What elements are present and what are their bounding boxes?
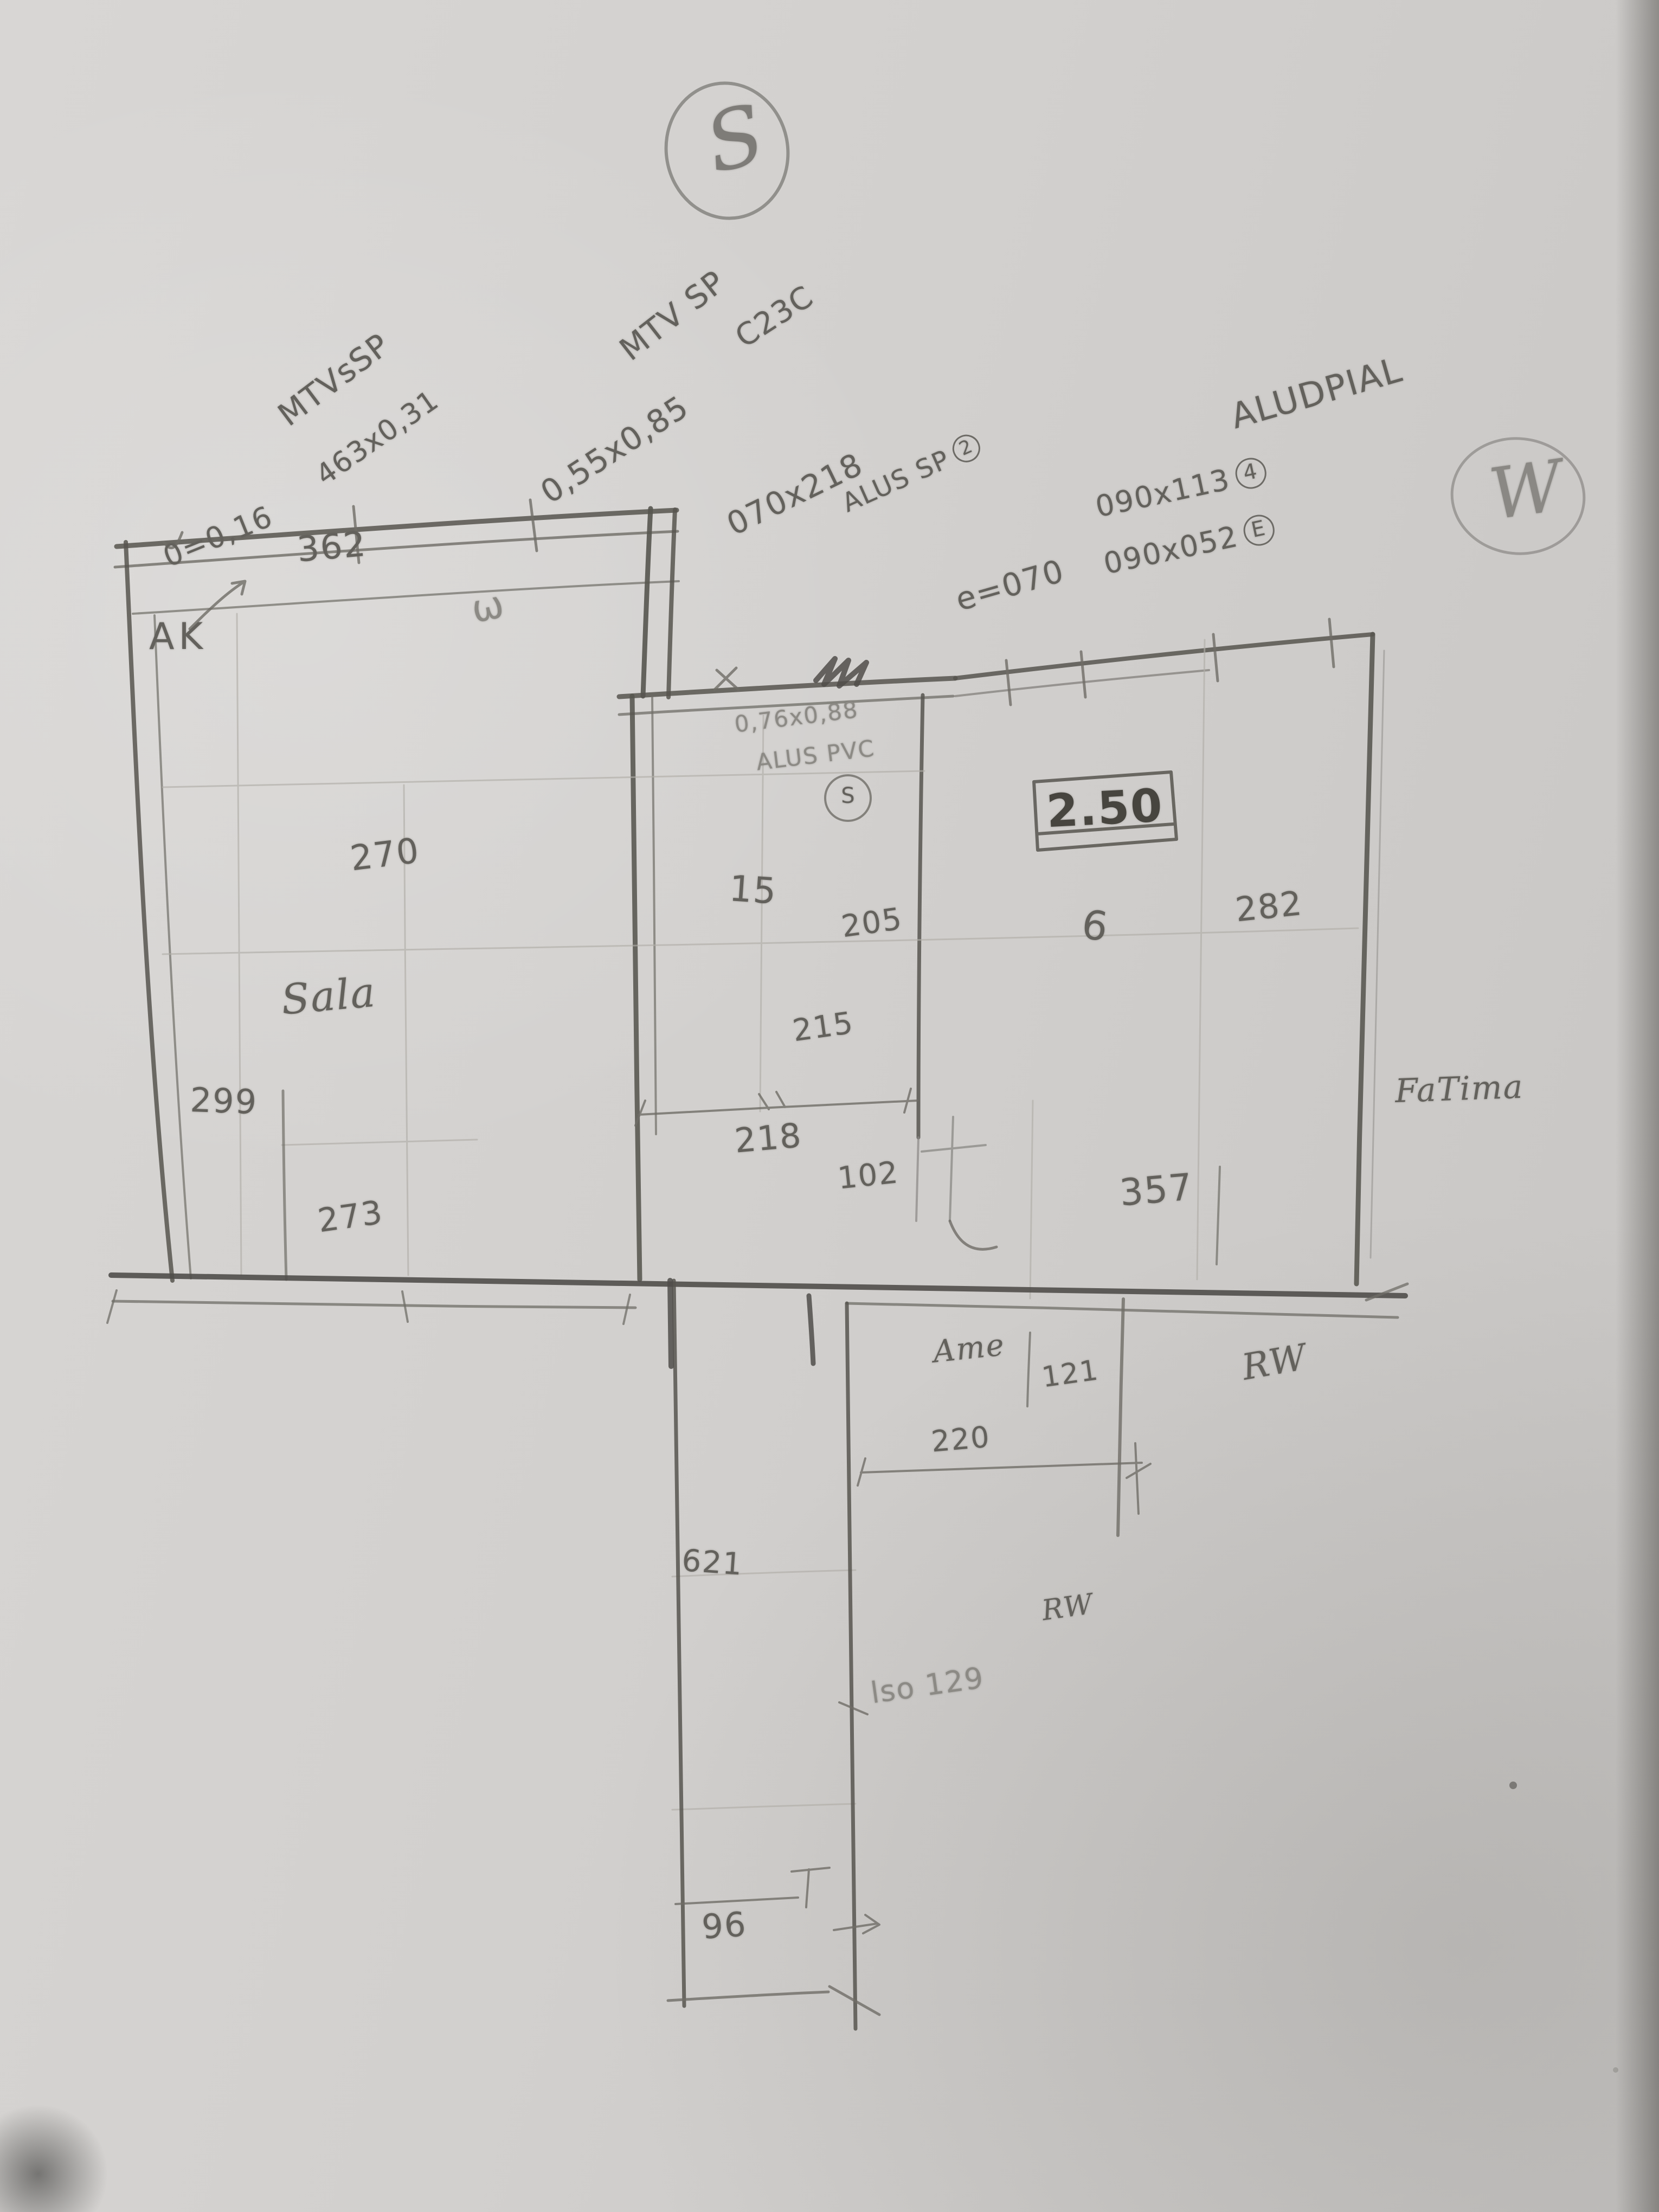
dim-right-side: 282	[1233, 883, 1304, 930]
dim-102-marks	[922, 1117, 986, 1221]
photo-of-pencil-sketch: S W MTVsSP 463x0,31 0=0,16 MTV SP C23C 0…	[0, 0, 1659, 2212]
wall-left-inner	[155, 615, 191, 1278]
wall-divider-left-a	[632, 696, 640, 1279]
ticks-right-top-wall	[1006, 619, 1334, 705]
dim-102-arrow	[950, 1221, 996, 1249]
closet-line	[283, 1091, 286, 1279]
dim-center-width: 218	[733, 1115, 803, 1161]
tick-357-extension	[1217, 1167, 1220, 1264]
right-door-badge1: 4	[1233, 455, 1269, 492]
room-label-sala: Sala	[279, 968, 378, 1024]
corridor-right-top-stub	[809, 1296, 813, 1364]
dim-corridor-upper: 621	[680, 1543, 744, 1583]
ame-bottom-dim	[858, 1443, 1150, 1514]
dim-strip-top: 362	[295, 524, 368, 570]
annotation-window-badge: S	[831, 780, 865, 814]
tick-strip-right	[530, 500, 537, 551]
corridor-bottom-dim-a	[676, 1868, 829, 1907]
window-symbol-scribble	[816, 659, 866, 686]
room-label-15: 15	[728, 867, 779, 912]
boxed-value-250: 2.50	[1040, 779, 1170, 838]
photo-right-edge-shadow	[1616, 0, 1659, 2212]
wall-bottom-double-left	[113, 1301, 635, 1308]
corridor-left-wall-top-bold	[670, 1281, 671, 1366]
corridor-bottom-dim-b	[668, 1986, 879, 2015]
room-label-ak: AK	[149, 615, 207, 658]
wall-bottom-long	[111, 1275, 1405, 1296]
dim-sala-left: 299	[189, 1080, 258, 1122]
dim-right-bottom: 357	[1118, 1166, 1195, 1215]
ame-right-wall	[1118, 1299, 1123, 1535]
wall-divider-right	[918, 695, 923, 1137]
wall-strip-inner-horizontal	[133, 581, 679, 614]
wall-right-side-smudge	[1371, 651, 1384, 1258]
x-mark	[715, 668, 738, 690]
name-fatima: FaTima	[1394, 1068, 1525, 1110]
wall-strip-right-stub-a	[643, 509, 651, 696]
corridor-right-wall	[847, 1303, 856, 2029]
paper-speck-1	[1509, 1782, 1517, 1789]
dim-ame-bottom: 220	[930, 1419, 992, 1458]
corridor-left-wall	[674, 1281, 684, 2006]
room-label-ame: Ame	[931, 1327, 1007, 1370]
ame-label-divider	[1027, 1333, 1030, 1406]
wall-right-top	[955, 634, 1373, 678]
wall-divider-right-ext	[916, 1137, 918, 1221]
wall-right-side	[1356, 634, 1373, 1284]
wall-divider-left-b	[652, 697, 656, 1134]
corridor-arrow-right	[834, 1915, 879, 1933]
dim-right-gap: 102	[836, 1155, 901, 1196]
dim-sala-height: 270	[348, 831, 422, 879]
right-door-badge2: E	[1241, 512, 1277, 549]
dim-corridor-bottom: 96	[700, 1904, 748, 1947]
wall-strip-right-stub-b	[668, 510, 675, 697]
compass-west-letter: W	[1484, 444, 1568, 536]
